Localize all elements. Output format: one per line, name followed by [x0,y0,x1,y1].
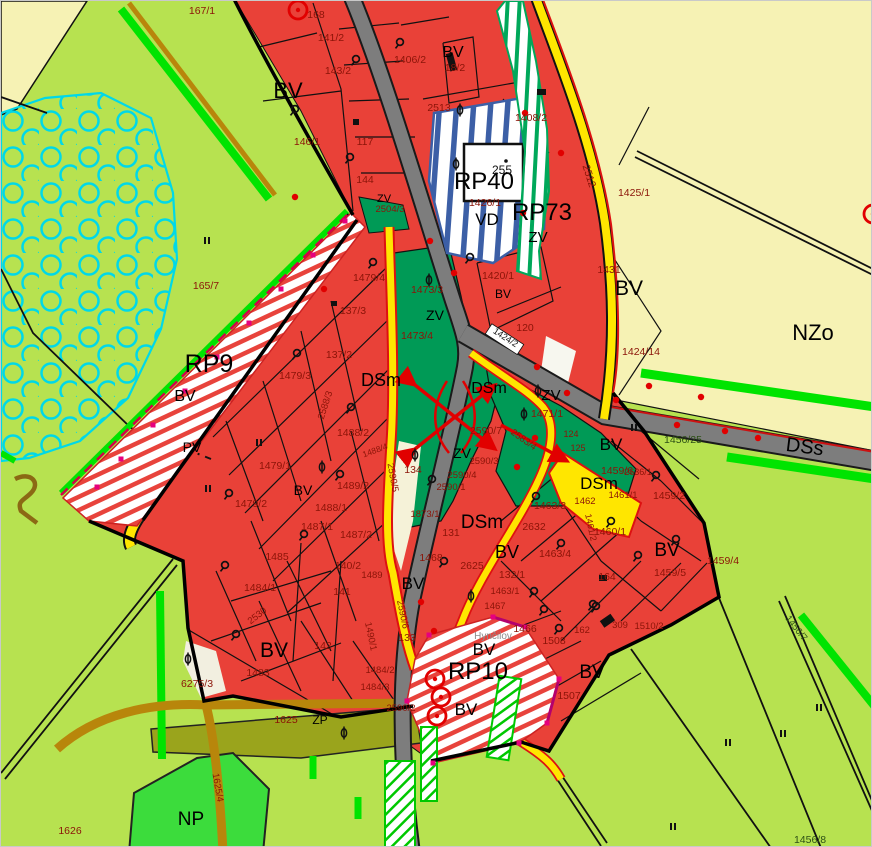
parcel-number-label: 142 [314,640,332,652]
parcel-number-label: 1459/2 [653,490,685,502]
red-node-dot [321,286,327,292]
parcel-number-label: 1463/1 [490,586,519,597]
parcel-number-label: 6275/3 [181,678,213,690]
parcel-number-label: 1873/1 [410,509,439,520]
zoning-map-svg: BVBVRP40VDRP73ZVZVNZoBVBVZVRP9BVPVDSmDSm… [1,1,872,847]
magenta-boundary-node [545,721,550,726]
zone-code-label: ZV [528,229,547,246]
parcel-number-label: 1466 [513,623,537,635]
parcel-number-label: 124 [563,429,578,439]
zone-code-label: BV [294,482,313,498]
parcel-number-label: 1468 [419,552,443,564]
zone-code-label: ZP [312,713,327,727]
magenta-boundary-node [279,287,284,292]
parcel-number-label: 1507 [557,690,581,702]
parcel-number-label: 1461/1 [608,490,637,501]
parcel-number-label: 146/1 [294,136,320,148]
parcel-number-label: 125 [570,443,585,453]
parcel-number-label: 1479/4 [353,272,385,284]
parcel-number-label: 2590/3 [469,456,498,467]
red-node-dot [418,599,424,605]
zone-code-label: BV [495,542,519,562]
parcel-number-label: 143/2 [325,65,351,77]
parcel-number-label: 1406/2 [394,54,426,66]
parcel-number-label: 1473/4 [401,330,433,342]
parcel-number-label: 1485 [265,551,289,563]
red-node-dot [698,394,704,400]
parcel-number-label: 1484/3 [360,682,389,693]
red-node-dot [755,435,761,441]
zone-code-label: BV [495,287,511,301]
parcel-number-label: 2632 [522,521,546,533]
parcel-number-label: 162 [574,625,590,636]
zone-code-label: BV [260,639,288,662]
red-node-dot [451,270,457,276]
parcel-number-label: 1489 [361,570,382,581]
parcel-number-label: 117 [357,136,374,148]
zone-code-label: BV [174,388,196,405]
red-node-dot [558,150,564,156]
red-node-dot [722,428,728,434]
zone-code-label: NZo [792,320,834,345]
parcel-number-label: 144 [356,174,374,186]
parcel-number-label: 164 [598,571,616,583]
parcel-number-label: 1487/1 [301,521,333,533]
parcel-number-label: 1479/1 [259,460,291,472]
zone-code-label: BV [455,700,478,719]
parcel-number-label: 132/1 [499,569,525,581]
zone-code-label: DSm [471,380,507,397]
parcel-number-label: 1460/1 [594,526,626,538]
parcel-number-label: 1479/3 [279,370,311,382]
parcel-number-label: 1467 [484,601,505,612]
parcel-number-label: 120 [516,322,534,334]
zone-code-label: RP9 [185,350,234,378]
magenta-boundary-node [311,253,316,258]
magenta-boundary-node [557,677,562,682]
parcel-number-label: 1487/2 [340,529,372,541]
red-node-dot [564,390,570,396]
parcel-number-label: 1431 [597,264,621,276]
parcel-number-label: 137/3 [340,305,366,317]
magenta-boundary-node [427,633,432,638]
parcel-number-label: 2590/1 [436,482,465,493]
zone-code-label: BV [654,540,680,561]
zone-code-label: BV [473,640,496,659]
zone-code-label: BV [579,662,605,683]
parcel-number-label: 137/2 [326,349,352,361]
parcel-number-label: 1488/1 [315,502,347,514]
parcel-number-label: 2590/2 [386,703,415,714]
parcel-number-label: 1463/3 [534,500,566,512]
red-node-dot [646,383,652,389]
magenta-boundary-node [247,321,252,326]
magenta-boundary-node [491,615,496,620]
parcel-number-label: 168 [307,9,325,21]
red-node-dot [514,464,520,470]
parcel-number-label: 2504/3 [375,204,404,215]
parcel-number-label: 1508 [542,635,566,647]
parcel-number-label: 2636/1 [624,467,652,477]
red-node-dot [431,628,437,634]
zone-code-label: DSm [461,512,503,533]
parcel-number-label: 141/2 [318,32,344,44]
zone-code-label: DSm [361,370,401,390]
parcel-number-label: 1489/2 [337,480,369,492]
zone-code-label: BV [600,435,623,454]
parcel-number-label: 1483 [246,667,270,679]
parcel-number-label: 1463/4 [539,548,571,560]
zone-code-label: BV [273,78,303,103]
parcel-number-label: 133 [398,632,416,644]
parcel-number-label: 1510/2 [634,621,663,632]
zone-code-label: VD [475,210,499,229]
parcel-number-label: 141 [333,586,351,598]
magenta-boundary-node [119,457,124,462]
magenta-boundary-node [151,423,156,428]
parcel-number-label: 134 [404,464,422,476]
parcel-number-label: 1426/1 [469,197,501,209]
parcel-number-label: 1459/5 [654,567,686,579]
magenta-boundary-node [431,761,436,766]
parcel-number-label: 1484/2 [365,665,394,676]
zone-code-label: RP10 [448,658,508,685]
parcel-number-label: 1462 [574,496,595,507]
zone-code-label: PV [183,439,202,455]
zone-code-label: ZV [541,387,560,404]
zone-code-label: BV [442,44,464,61]
parcel-number-label: 140/2 [335,560,361,572]
parcel-number-label: 1456/8 [794,834,826,846]
zone-code-label: NP [178,809,204,830]
parcel-number-label: 1473/3 [411,284,443,296]
red-node-dot [427,238,433,244]
zoning-map-canvas[interactable]: BVBVRP40VDRP73ZVZVNZoBVBVZVRP9BVPVDSmDSm… [0,0,872,847]
zone-code-label: DSs [785,434,825,460]
parcel-number-label: 18/2 [445,62,466,74]
zone-code-label: BV [402,574,425,593]
red-node-dot [674,422,680,428]
parcel-number-label: 165/7 [193,280,219,292]
parcel-number-label: 1408/2 [515,112,547,124]
parcel-number-label: 1471/1 [531,408,563,420]
parcel-number-label: 1456/25 [664,434,702,446]
place-name-label: Hynčilov [474,631,512,642]
parcel-number-label: 2513 [427,102,451,114]
magenta-boundary-node [517,741,522,746]
parcel-number-label: 1625 [274,714,298,726]
magenta-boundary-node [95,485,100,490]
parcel-number-label: 167/1 [189,5,215,17]
parcel-number-label: 2590/7 [470,425,502,437]
parcel-number-label: 255 [492,163,512,177]
parcel-number-label: 1488/2 [337,427,369,439]
zone-code-label: RP73 [512,199,572,226]
parcel-number-label: 1484/1 [244,582,276,594]
parcel-number-label: 1424/14 [622,346,660,358]
parcel-number-label: 1479/2 [235,498,267,510]
parcel-number-label: 1459/4 [707,555,739,567]
red-node-dot [292,194,298,200]
parcel-number-label: 1425/1 [618,187,650,199]
zone-code-label: BV [615,277,643,300]
red-node-dot [613,397,619,403]
parcel-number-label: 1420/1 [482,270,514,282]
zone-code-label: ZV [426,307,445,323]
parcel-number-label: 309 [612,620,628,631]
magenta-boundary-node [343,219,348,224]
parcel-number-label: 131 [442,527,460,539]
red-node-dot [534,364,540,370]
parcel-number-label: 2625 [460,560,484,572]
parcel-number-label: 1626 [58,825,82,837]
parcel-number-label: 2590/4 [447,470,476,481]
